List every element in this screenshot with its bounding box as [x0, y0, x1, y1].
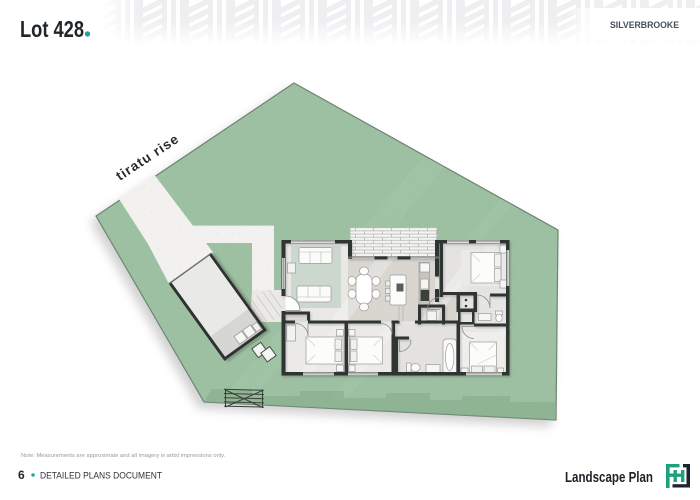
svg-text:Note: Measurements are approxi: Note: Measurements are approximate and a…	[21, 453, 226, 459]
svg-text:6: 6	[18, 468, 25, 482]
svg-text:SILVERBROOKE: SILVERBROOKE	[610, 20, 679, 30]
svg-text:Landscape Plan: Landscape Plan	[565, 469, 653, 486]
svg-text:DETAILED PLANS DOCUMENT: DETAILED PLANS DOCUMENT	[40, 471, 162, 482]
svg-text:Lot 428: Lot 428	[20, 16, 84, 42]
